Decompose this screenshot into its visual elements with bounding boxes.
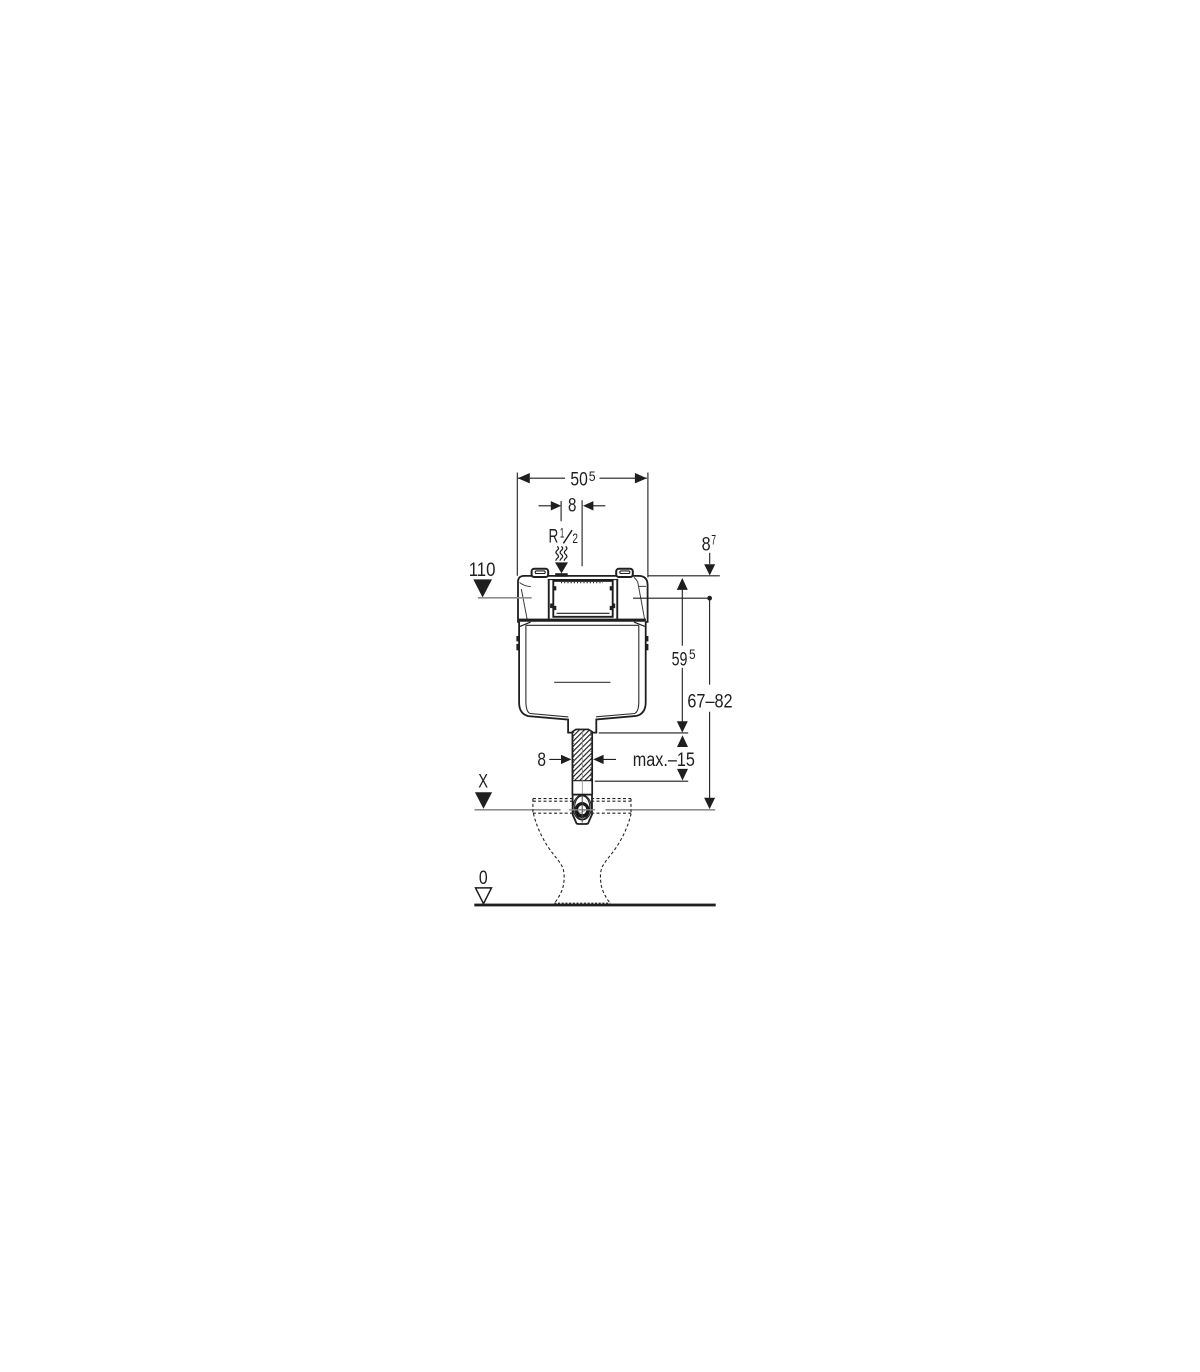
svg-text:5: 5: [689, 646, 696, 662]
svg-text:8: 8: [702, 535, 711, 556]
svg-text:X: X: [478, 771, 488, 792]
svg-text:1: 1: [560, 525, 564, 540]
svg-text:50: 50: [570, 470, 587, 491]
svg-text:7: 7: [711, 532, 716, 547]
svg-text:R: R: [549, 527, 559, 548]
svg-text:5: 5: [589, 468, 596, 484]
svg-text:0: 0: [479, 868, 488, 889]
svg-text:110: 110: [469, 560, 496, 581]
svg-text:max.–15: max.–15: [633, 750, 695, 771]
svg-text:59: 59: [672, 650, 688, 671]
svg-text:67–82: 67–82: [687, 692, 732, 713]
svg-text:8: 8: [537, 750, 546, 771]
svg-text:2: 2: [572, 531, 578, 546]
svg-text:8: 8: [568, 496, 576, 517]
